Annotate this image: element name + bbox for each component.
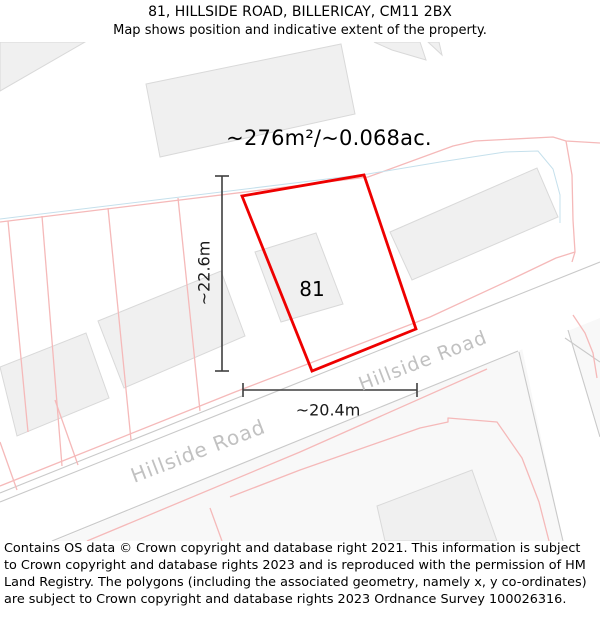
building bbox=[428, 42, 442, 55]
parcel-divider bbox=[42, 216, 62, 466]
horizontal-dimension-label: ~20.4m bbox=[296, 401, 361, 420]
property-map-page: { "header": { "title": "81, HILLSIDE ROA… bbox=[0, 0, 600, 625]
page-title: 81, HILLSIDE ROAD, BILLERICAY, CM11 2BX bbox=[0, 3, 600, 22]
page-subtitle: Map shows position and indicative extent… bbox=[0, 22, 600, 39]
building bbox=[0, 42, 85, 91]
map-header: 81, HILLSIDE ROAD, BILLERICAY, CM11 2BX … bbox=[0, 3, 600, 39]
area-label: ~276m²/~0.068ac. bbox=[226, 126, 432, 150]
vertical-dimension-label: ~22.6m bbox=[195, 241, 214, 306]
building bbox=[390, 168, 558, 280]
building bbox=[374, 42, 426, 60]
copyright-notice: Contains OS data © Crown copyright and d… bbox=[4, 541, 597, 609]
plot-number-label: 81 bbox=[299, 277, 324, 301]
building bbox=[0, 333, 109, 436]
parcel-boundary bbox=[566, 141, 575, 262]
